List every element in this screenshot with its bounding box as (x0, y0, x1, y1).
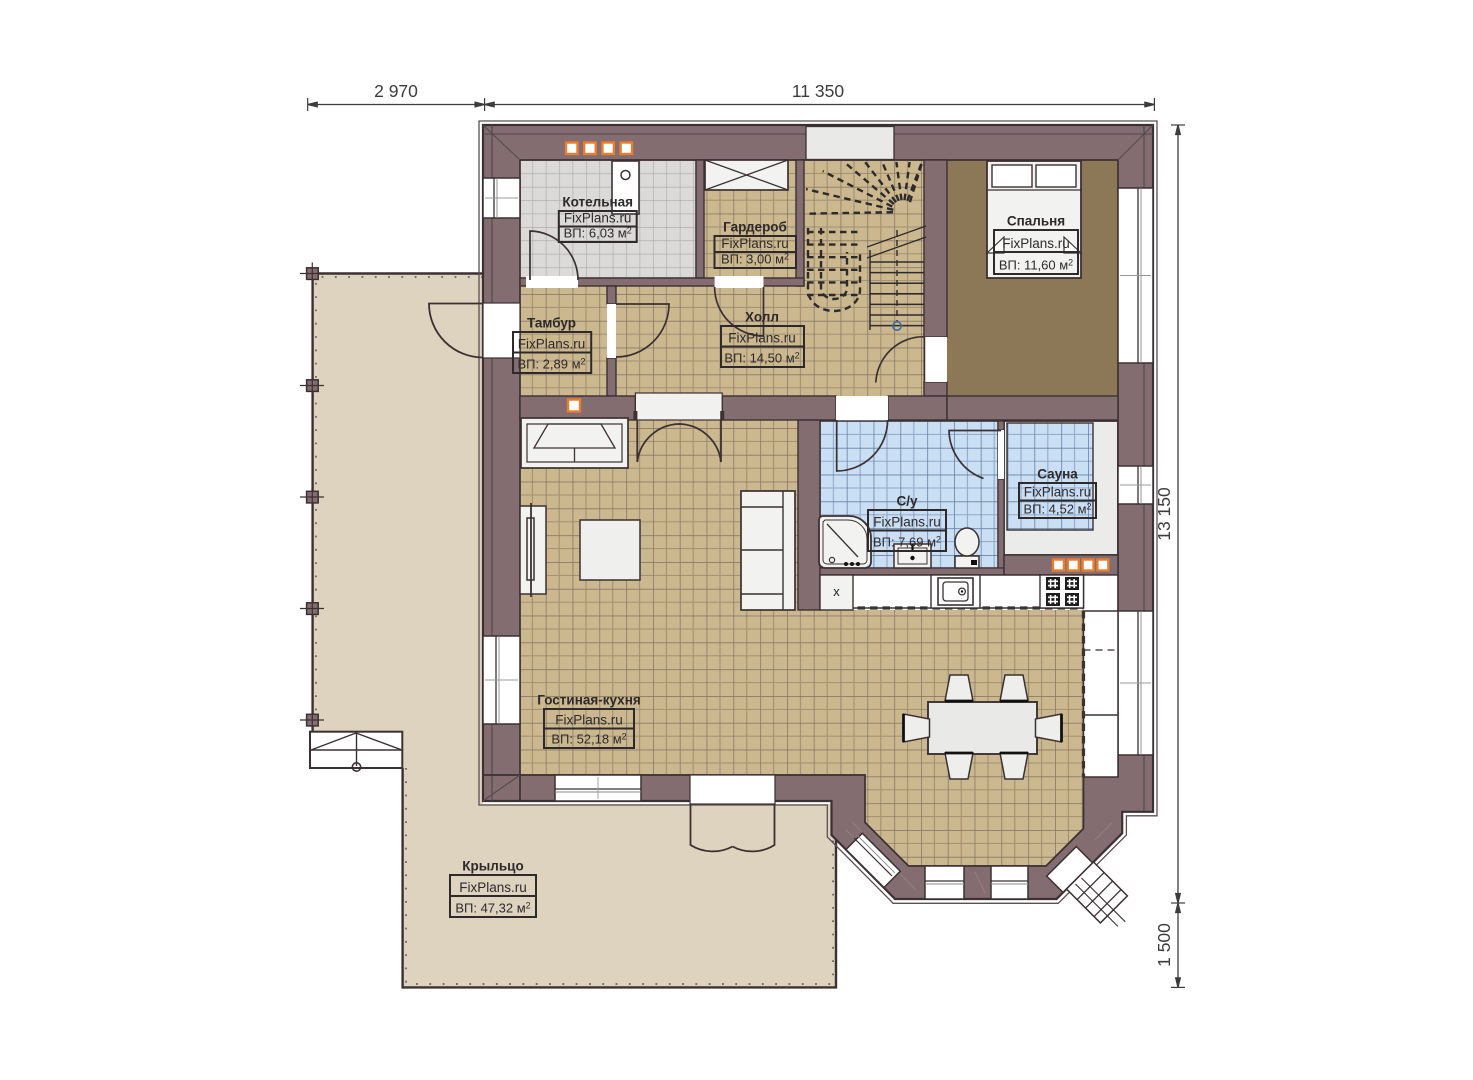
svg-text:Сауна: Сауна (1037, 467, 1078, 482)
svg-text:Спальня: Спальня (1007, 214, 1065, 229)
svg-text:ВП: 7,69 м2: ВП: 7,69 м2 (873, 535, 941, 550)
svg-text:1 500: 1 500 (1154, 923, 1174, 967)
svg-text:Крыльцо: Крыльцо (462, 859, 523, 874)
svg-text:FixPlans.ru: FixPlans.ru (728, 331, 796, 346)
svg-text:ВП: 47,32 м2: ВП: 47,32 м2 (455, 901, 530, 916)
svg-text:Гардероб: Гардероб (723, 220, 787, 235)
svg-text:FixPlans.ru: FixPlans.ru (1002, 236, 1070, 251)
svg-text:Котельная: Котельная (562, 195, 633, 210)
svg-text:FixPlans.ru: FixPlans.ru (555, 713, 623, 728)
svg-text:ВП: 3,00 м2: ВП: 3,00 м2 (721, 252, 789, 267)
svg-text:ВП: 4,52 м2: ВП: 4,52 м2 (1023, 502, 1091, 517)
svg-text:ВП: 2,89 м2: ВП: 2,89 м2 (517, 357, 585, 372)
svg-text:ВП: 52,18 м2: ВП: 52,18 м2 (551, 732, 626, 747)
svg-text:x: x (833, 584, 840, 599)
svg-text:FixPlans.ru: FixPlans.ru (873, 515, 941, 530)
svg-text:13 150: 13 150 (1154, 487, 1174, 541)
svg-text:Тамбур: Тамбур (527, 316, 576, 331)
svg-text:Холл: Холл (745, 310, 779, 325)
svg-text:ВП: 11,60 м2: ВП: 11,60 м2 (999, 258, 1073, 273)
svg-text:FixPlans.ru: FixPlans.ru (721, 236, 789, 251)
svg-text:С/у: С/у (896, 494, 918, 509)
svg-text:FixPlans.ru: FixPlans.ru (459, 880, 527, 895)
svg-text:FixPlans.ru: FixPlans.ru (564, 211, 632, 226)
svg-text:FixPlans.ru: FixPlans.ru (518, 337, 586, 352)
svg-text:FixPlans.ru: FixPlans.ru (1024, 485, 1092, 500)
svg-text:ВП: 6,03 м2: ВП: 6,03 м2 (564, 226, 632, 241)
svg-text:2 970: 2 970 (374, 81, 418, 101)
svg-text:11 350: 11 350 (792, 81, 844, 101)
svg-text:ВП: 14,50 м2: ВП: 14,50 м2 (724, 351, 799, 366)
svg-text:Гостиная-кухня: Гостиная-кухня (537, 693, 640, 708)
